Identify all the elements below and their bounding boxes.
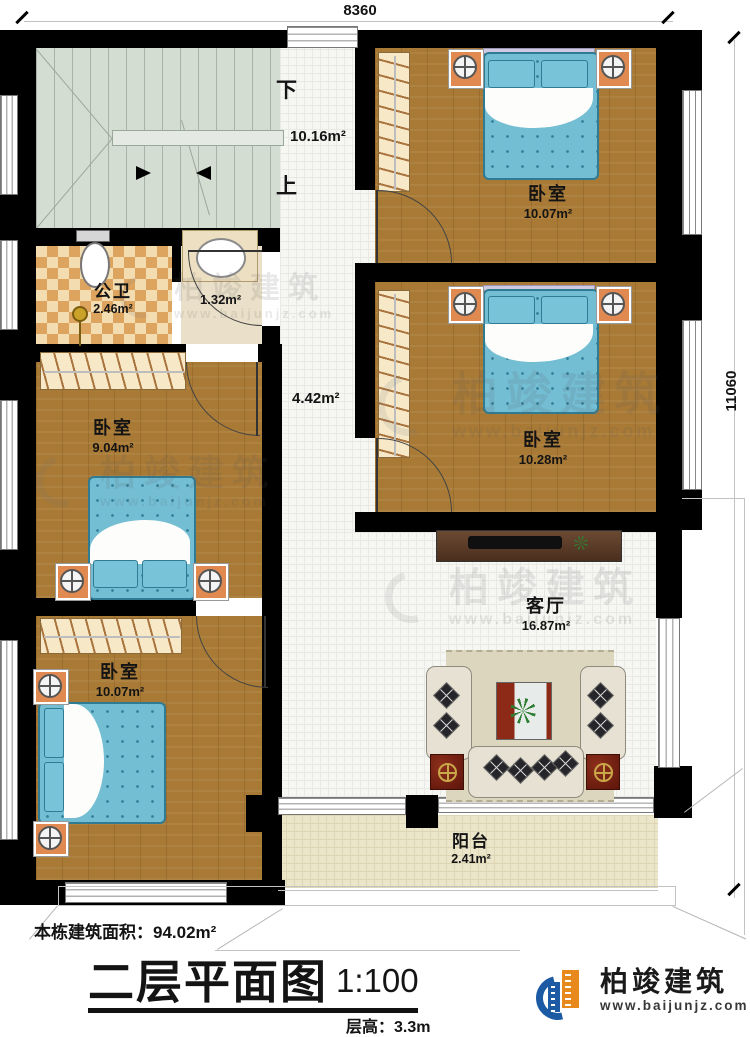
wall-segment <box>355 48 375 190</box>
plant <box>510 698 536 724</box>
bathroom-label: 公卫 2.46m² <box>63 282 163 317</box>
living-room-label: 客厅 16.87m² <box>496 596 596 633</box>
drain-stem <box>79 322 81 346</box>
brand-logo-icon <box>536 966 592 1024</box>
lamp <box>601 292 625 316</box>
window <box>287 26 358 48</box>
living-room-area: 16.87m² <box>522 618 570 634</box>
balcony-name: 阳台 <box>452 832 490 852</box>
window <box>0 240 18 330</box>
window <box>0 400 18 550</box>
wardrobe <box>378 52 410 192</box>
wall-segment <box>20 598 196 616</box>
floor-height-text: 层高：3.3m <box>346 1013 430 1037</box>
bathroom-name: 公卫 <box>94 282 132 302</box>
wall-segment <box>355 512 682 532</box>
window <box>658 618 680 768</box>
veranda-line <box>682 498 744 499</box>
bathroom-area: 2.46m² <box>93 302 133 317</box>
balcony-label: 阳台 2.41m² <box>421 832 521 867</box>
living-room-name: 客厅 <box>526 596 566 618</box>
toilet-tank <box>76 230 110 242</box>
leader-line <box>217 908 283 950</box>
dimension-tick <box>661 11 674 24</box>
plan-title: 二层平面图 <box>88 946 328 1012</box>
window <box>682 320 702 490</box>
wall-pier <box>0 330 18 400</box>
wall-pier <box>0 30 18 95</box>
brand-logo: 柏竣建筑 www.baijunjz.com <box>536 966 749 1024</box>
wardrobe <box>40 352 186 390</box>
door-leaf <box>256 362 258 436</box>
vanity-area-label: 1.32m² <box>200 292 241 307</box>
bedroom-area: 9.04m² <box>92 440 133 456</box>
lamp <box>60 569 84 593</box>
bedroom-name: 卧室 <box>523 430 563 452</box>
window <box>682 90 702 235</box>
wall-segment <box>24 30 287 48</box>
door-leaf <box>376 190 378 263</box>
bedroom-top-right-label: 卧室 10.07m² <box>498 184 598 221</box>
door-leaf <box>376 438 378 512</box>
dimension-line-top <box>24 21 673 22</box>
wall-pier <box>406 795 438 828</box>
brand-url: www.baijunjz.com <box>600 998 749 1014</box>
pillow <box>541 60 588 88</box>
wall-pier <box>682 490 702 530</box>
pillow <box>44 762 64 812</box>
stair-up-label: 上 <box>276 170 297 200</box>
bedroom-name: 卧室 <box>100 662 140 684</box>
bedroom-area: 10.07m² <box>524 206 572 222</box>
side-table-rosette <box>594 763 613 782</box>
lamp <box>453 55 477 79</box>
bedroom-mid-left-label: 卧室 9.04m² <box>63 418 163 455</box>
balcony-railing <box>58 886 676 906</box>
logo-building-orange <box>562 970 579 1008</box>
wall-pier <box>246 795 278 832</box>
floor-plan-canvas: 8360 11060 <box>0 0 750 1037</box>
console-plant <box>574 536 588 550</box>
dimension-label-top: 8360 <box>330 2 390 19</box>
veranda-line <box>744 498 745 935</box>
bedroom-area: 10.07m² <box>96 684 144 700</box>
building-area-text: 本栋建筑面积：94.02m² <box>34 918 216 943</box>
wall-pier <box>0 195 18 240</box>
stairwell-area-label: 10.16m² <box>290 128 346 145</box>
lamp <box>38 674 62 698</box>
lamp <box>453 292 477 316</box>
stair-direction-arrow <box>136 166 151 180</box>
wall-segment <box>172 228 181 282</box>
wardrobe <box>378 290 410 458</box>
pillow <box>142 560 187 588</box>
wardrobe <box>40 618 182 654</box>
dimension-label-right: 11060 <box>723 359 741 423</box>
pillow <box>44 708 64 758</box>
balcony-sliding-door <box>278 797 406 815</box>
wall-segment <box>258 344 282 362</box>
tv <box>468 536 562 549</box>
dimension-line-right <box>734 40 735 898</box>
lamp <box>38 826 62 850</box>
wardrobe-rail <box>44 636 180 638</box>
pillow <box>541 296 588 324</box>
bedroom-mid-right-label: 卧室 10.28m² <box>493 430 593 467</box>
wall-segment <box>358 30 682 48</box>
brand-name: 柏竣建筑 <box>600 966 749 998</box>
wall-segment <box>355 263 682 282</box>
window <box>0 640 18 840</box>
window <box>0 95 18 195</box>
stair-direction-arrow <box>196 166 211 180</box>
pillow <box>488 296 535 324</box>
pillow <box>488 60 535 88</box>
wall-pier <box>682 30 702 90</box>
pillow <box>93 560 138 588</box>
bedroom-name: 卧室 <box>528 184 568 206</box>
wall-segment <box>18 30 36 905</box>
wall-pier <box>682 235 702 320</box>
railing-corner-line <box>673 906 746 939</box>
wardrobe-rail <box>394 294 396 456</box>
plan-scale: 1:100 <box>336 962 419 1000</box>
wall-segment <box>262 228 280 252</box>
side-table-rosette <box>438 763 457 782</box>
hallway-area-label: 4.42m² <box>292 390 340 407</box>
sofa <box>580 666 626 760</box>
dimension-tick <box>15 11 28 24</box>
balcony-railing-line <box>278 890 658 891</box>
bedroom-name: 卧室 <box>93 418 133 440</box>
wall-segment <box>355 282 375 438</box>
wardrobe-rail <box>394 56 396 190</box>
balcony-area: 2.41m² <box>451 852 491 867</box>
door-leaf <box>264 616 266 688</box>
sofa <box>426 666 472 760</box>
wall-pier <box>0 550 18 640</box>
wardrobe-rail <box>44 371 184 373</box>
bedroom-bottom-left-label: 卧室 10.07m² <box>70 662 170 699</box>
lamp <box>198 569 222 593</box>
wall-segment <box>656 530 682 618</box>
logo-building-blue <box>548 982 560 1012</box>
wall-pier <box>0 840 18 905</box>
lamp <box>601 55 625 79</box>
stair-down-label: 下 <box>276 74 297 104</box>
wall-segment <box>656 768 682 815</box>
bedroom-area: 10.28m² <box>519 452 567 468</box>
door-leaf <box>188 250 262 252</box>
stair-handrail <box>112 130 284 146</box>
